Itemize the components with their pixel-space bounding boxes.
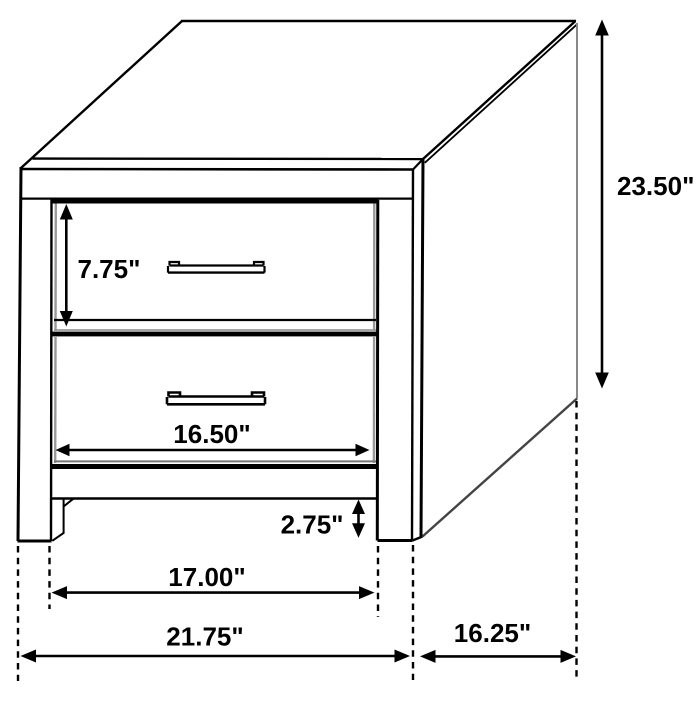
svg-text:2.75": 2.75" (281, 510, 344, 540)
svg-text:21.75": 21.75" (166, 622, 243, 652)
svg-text:16.50": 16.50" (173, 419, 250, 449)
svg-text:7.75": 7.75" (78, 254, 141, 284)
svg-text:23.50": 23.50" (617, 171, 694, 201)
svg-text:16.25": 16.25" (454, 618, 531, 648)
svg-text:17.00": 17.00" (168, 562, 245, 592)
